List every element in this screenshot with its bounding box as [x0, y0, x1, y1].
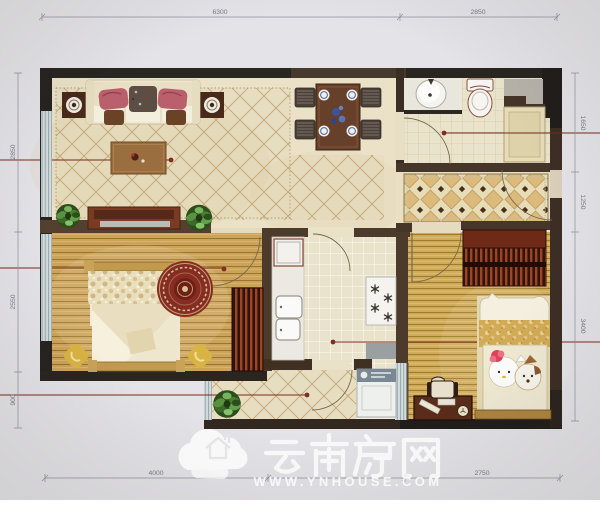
- svg-text:WWW.YNHOUSE.COM: WWW.YNHOUSE.COM: [254, 474, 443, 489]
